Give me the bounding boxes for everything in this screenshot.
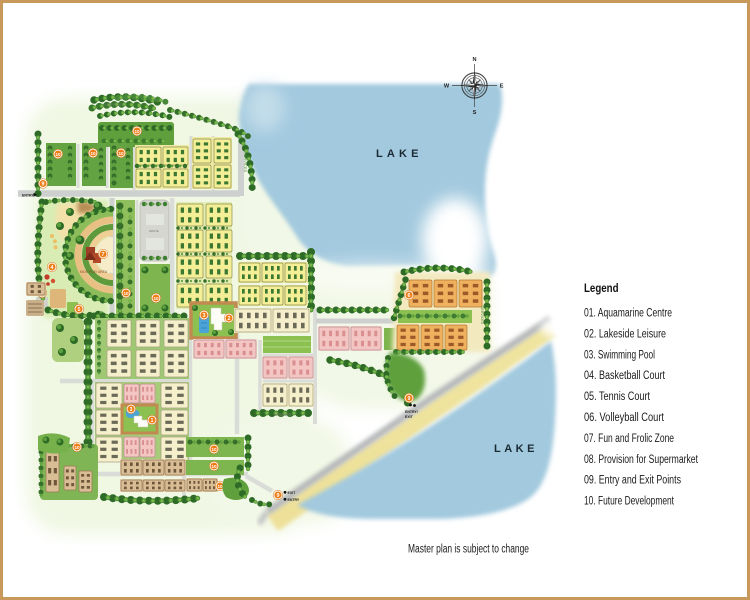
svg-text:10: 10 xyxy=(90,151,96,156)
svg-text:ENTRY: ENTRY xyxy=(288,498,300,502)
svg-text:ENTRY/: ENTRY/ xyxy=(405,410,418,414)
svg-text:E: E xyxy=(500,84,504,90)
svg-text:10: 10 xyxy=(123,291,129,296)
svg-text:9: 9 xyxy=(277,493,280,499)
svg-text:07. Fun and Frolic Zone: 07. Fun and Frolic Zone xyxy=(584,433,674,445)
svg-text:WASTE: WASTE xyxy=(149,229,159,233)
svg-text:10: 10 xyxy=(211,464,217,469)
svg-text:5: 5 xyxy=(78,307,81,313)
svg-text:09. Entry and Exit Points: 09. Entry and Exit Points xyxy=(584,475,681,487)
svg-text:9: 9 xyxy=(42,181,45,187)
svg-text:3: 3 xyxy=(203,313,206,319)
svg-text:04. Basketball Court: 04. Basketball Court xyxy=(584,370,666,382)
svg-text:W: W xyxy=(444,84,450,90)
svg-text:SERVICES: SERVICES xyxy=(104,102,124,107)
svg-text:N: N xyxy=(472,57,476,63)
svg-text:4: 4 xyxy=(51,265,54,271)
svg-text:10: 10 xyxy=(153,296,159,301)
svg-text:10: 10 xyxy=(55,152,61,157)
svg-text:KIDS PLAY AREA: KIDS PLAY AREA xyxy=(80,270,108,274)
svg-text:3: 3 xyxy=(130,407,133,413)
svg-text:10: 10 xyxy=(74,445,80,450)
svg-text:10. Future Development: 10. Future Development xyxy=(584,496,675,508)
svg-text:06. Volleyball Court: 06. Volleyball Court xyxy=(584,412,665,424)
svg-text:10: 10 xyxy=(118,151,124,156)
svg-text:03. Swimming Pool: 03. Swimming Pool xyxy=(584,349,655,361)
svg-text:Legend: Legend xyxy=(584,281,619,295)
svg-text:6: 6 xyxy=(408,293,411,299)
svg-text:SERVICES: SERVICES xyxy=(480,306,484,325)
svg-text:1: 1 xyxy=(151,418,154,424)
svg-text:2: 2 xyxy=(228,316,231,322)
svg-text:9: 9 xyxy=(408,396,411,402)
svg-text:01. Aquamarine Centre: 01. Aquamarine Centre xyxy=(584,308,672,320)
svg-text:LAKE: LAKE xyxy=(376,148,421,160)
svg-text:10: 10 xyxy=(134,129,140,134)
svg-text:Master plan is subject to chan: Master plan is subject to change xyxy=(408,544,529,556)
svg-text:EXIT: EXIT xyxy=(288,491,297,495)
svg-text:SERVICES: SERVICES xyxy=(274,413,292,417)
svg-text:ENTRY: ENTRY xyxy=(22,193,34,197)
svg-text:7: 7 xyxy=(102,252,105,258)
svg-text:EXIT: EXIT xyxy=(405,415,414,419)
svg-text:LAKE: LAKE xyxy=(494,443,537,455)
svg-text:08. Provision for Supermarket: 08. Provision for Supermarket xyxy=(584,454,699,466)
svg-text:02. Lakeside Leisure: 02. Lakeside Leisure xyxy=(584,328,666,340)
svg-text:S: S xyxy=(473,110,477,116)
svg-text:05. Tennis Court: 05. Tennis Court xyxy=(584,391,651,403)
svg-text:SERVICES: SERVICES xyxy=(243,152,248,172)
svg-text:10: 10 xyxy=(211,447,217,452)
svg-text:10: 10 xyxy=(217,484,223,489)
